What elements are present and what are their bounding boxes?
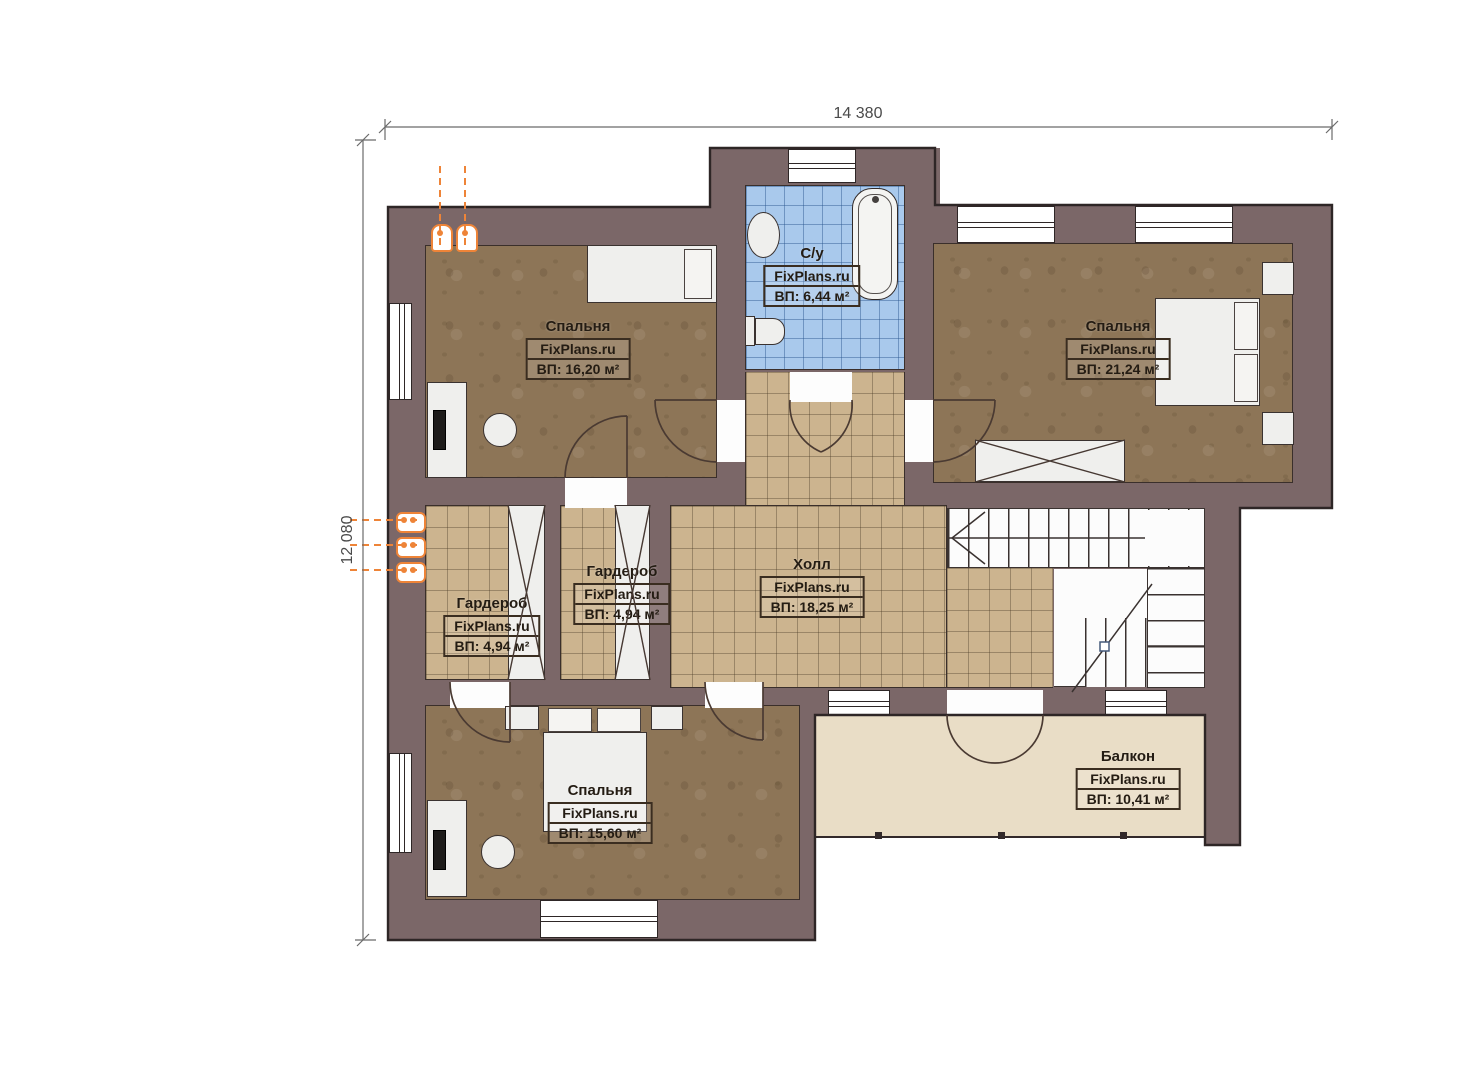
label-box: FixPlans.ru ВП: 16,20 м² — [526, 338, 631, 380]
door-opening-wardrobe-left — [450, 682, 510, 708]
radiator-icon — [396, 512, 426, 533]
label-box: FixPlans.ru ВП: 6,44 м² — [763, 265, 860, 307]
window-bathroom — [788, 149, 856, 183]
door-opening-bedroom-top-left — [717, 400, 745, 462]
staircase-lower-treads — [1085, 618, 1147, 687]
window-left-lower — [389, 753, 412, 853]
room-name: Балкон — [1076, 748, 1181, 765]
staircase-landing-top — [1146, 510, 1203, 566]
room-label-wardrobe-left: Гардероб FixPlans.ru ВП: 4,94 м² — [443, 595, 540, 657]
radiator-icon — [431, 224, 453, 252]
window-bottom-bedroom — [540, 900, 658, 938]
label-box: FixPlans.ru ВП: 21,24 м² — [1066, 338, 1171, 380]
radiator-icon — [456, 224, 478, 252]
room-label-hall: Холл FixPlans.ru ВП: 18,25 м² — [760, 556, 865, 618]
bathtub-faucet-icon — [872, 196, 879, 203]
room-name: С/у — [763, 245, 860, 262]
wardrobe-unit-bedroom — [975, 440, 1125, 482]
label-box: FixPlans.ru ВП: 18,25 м² — [760, 576, 865, 618]
watermark-text: FixPlans.ru — [762, 578, 863, 598]
room-name: Спальня — [1066, 318, 1171, 335]
radiator-icon — [396, 537, 426, 558]
balcony-railing-post — [998, 832, 1005, 839]
watermark-text: FixPlans.ru — [528, 340, 629, 360]
watermark-text: FixPlans.ru — [575, 585, 668, 605]
room-area: ВП: 16,20 м² — [528, 360, 629, 378]
toilet-tank-icon — [745, 316, 755, 346]
window-left-upper — [389, 303, 412, 400]
bed-pillow — [548, 708, 592, 732]
window-balcony-left — [828, 690, 890, 715]
bed-pillow — [1234, 302, 1258, 350]
wall-right-strip — [1205, 508, 1240, 845]
floor-hall-under-stairs — [947, 568, 1053, 688]
dimension-width-label: 14 380 — [834, 105, 883, 122]
room-name: Спальня — [526, 318, 631, 335]
label-box: FixPlans.ru ВП: 4,94 м² — [443, 615, 540, 657]
radiator-icon — [396, 562, 426, 583]
window-top-right-1 — [957, 206, 1055, 243]
bed-pillow — [1234, 354, 1258, 402]
balcony-railing-post — [1120, 832, 1127, 839]
nightstand — [1262, 262, 1294, 295]
room-area: ВП: 10,41 м² — [1078, 790, 1179, 808]
nightstand — [505, 706, 539, 730]
room-area: ВП: 18,25 м² — [762, 598, 863, 616]
room-area: ВП: 4,94 м² — [575, 605, 668, 623]
room-area: ВП: 4,94 м² — [445, 637, 538, 655]
room-label-bathroom: С/у FixPlans.ru ВП: 6,44 м² — [763, 245, 860, 307]
toilet-bowl-icon — [755, 318, 785, 345]
bed-pillow — [597, 708, 641, 732]
room-label-wardrobe-middle: Гардероб FixPlans.ru ВП: 4,94 м² — [573, 563, 670, 625]
floor-plan: Спальня FixPlans.ru ВП: 16,20 м² С/у Fix… — [0, 0, 1473, 1080]
window-top-right-2 — [1135, 206, 1233, 243]
room-name: Спальня — [548, 782, 653, 799]
label-box: FixPlans.ru ВП: 4,94 м² — [573, 583, 670, 625]
watermark-text: FixPlans.ru — [445, 617, 538, 637]
room-name: Гардероб — [573, 563, 670, 580]
watermark-text: FixPlans.ru — [765, 267, 858, 287]
room-label-bedroom-top-right: Спальня FixPlans.ru ВП: 21,24 м² — [1066, 318, 1171, 380]
door-opening-wardrobe-middle — [565, 478, 627, 508]
room-name: Гардероб — [443, 595, 540, 612]
label-box: FixPlans.ru ВП: 15,60 м² — [548, 802, 653, 844]
balcony-railing-post — [875, 832, 882, 839]
room-label-balcony: Балкон FixPlans.ru ВП: 10,41 м² — [1076, 748, 1181, 810]
door-opening-bedroom-bottom — [705, 682, 763, 708]
chair-icon — [481, 835, 515, 869]
watermark-text: FixPlans.ru — [1068, 340, 1169, 360]
door-opening-bedroom-top-right — [905, 400, 933, 462]
label-box: FixPlans.ru ВП: 10,41 м² — [1076, 768, 1181, 810]
room-name: Холл — [760, 556, 865, 573]
window-balcony-right — [1105, 690, 1167, 715]
staircase-right-run — [1147, 568, 1205, 688]
dimension-height-label: 12 080 — [339, 515, 356, 564]
door-opening-bathroom — [790, 372, 852, 402]
room-area: ВП: 15,60 м² — [550, 824, 651, 842]
watermark-text: FixPlans.ru — [1078, 770, 1179, 790]
nightstand — [1262, 412, 1294, 445]
room-area: ВП: 6,44 м² — [765, 287, 858, 305]
room-label-bedroom-bottom: Спальня FixPlans.ru ВП: 15,60 м² — [548, 782, 653, 844]
monitor-icon — [433, 410, 446, 450]
room-area: ВП: 21,24 м² — [1068, 360, 1169, 378]
bed-pillow — [684, 249, 712, 299]
watermark-text: FixPlans.ru — [550, 804, 651, 824]
nightstand — [651, 706, 683, 730]
door-opening-balcony — [947, 690, 1043, 715]
room-label-bedroom-top-left: Спальня FixPlans.ru ВП: 16,20 м² — [526, 318, 631, 380]
monitor-icon — [433, 830, 446, 870]
chair-icon — [483, 413, 517, 447]
